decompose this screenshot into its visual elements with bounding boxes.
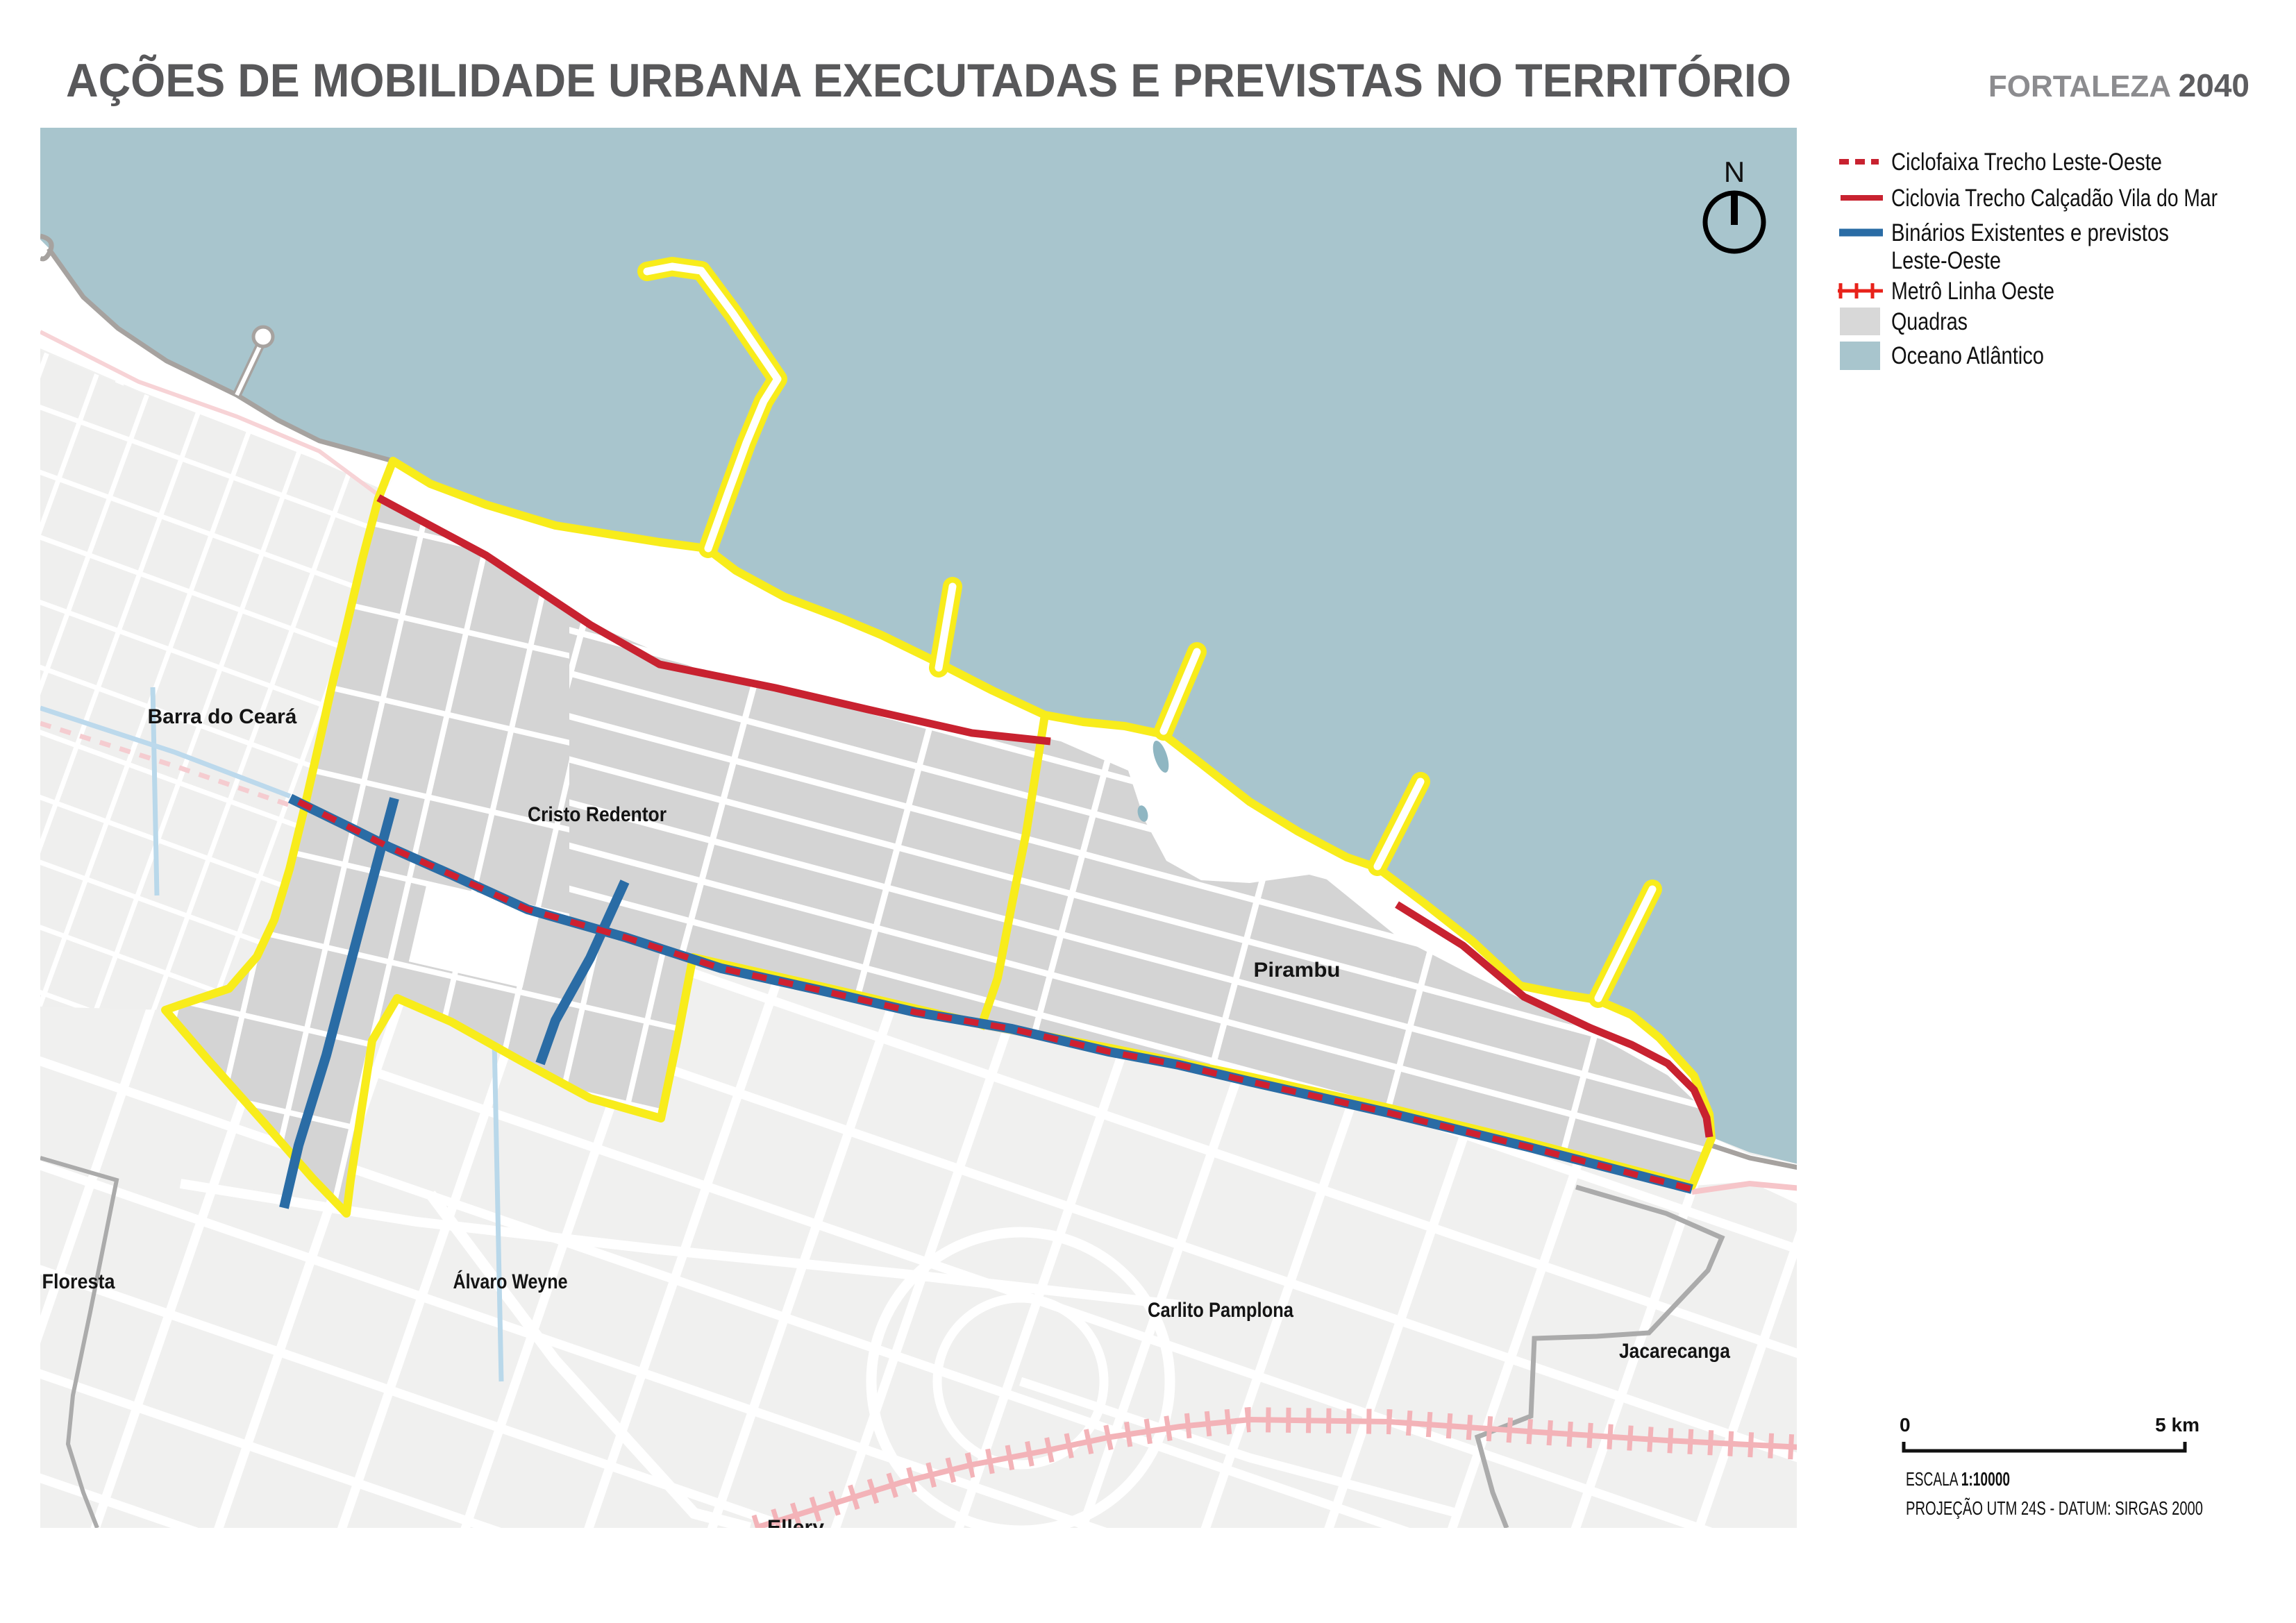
svg-text:0: 0	[1900, 1414, 1911, 1436]
svg-text:Leste-Oeste: Leste-Oeste	[1891, 247, 2001, 274]
svg-text:Carlito Pamplona: Carlito Pamplona	[1148, 1299, 1293, 1322]
svg-text:Ciclovia Trecho Calçadão Vila: Ciclovia Trecho Calçadão Vila do Mar	[1891, 185, 2218, 212]
svg-text:Cristo Redentor: Cristo Redentor	[528, 803, 667, 826]
svg-text:Oceano Atlântico: Oceano Atlântico	[1891, 342, 2044, 369]
svg-text:Barra do Ceará: Barra do Ceará	[148, 705, 297, 728]
svg-text:PROJEÇÃO UTM 24S - DATUM: SIRG: PROJEÇÃO UTM 24S - DATUM: SIRGAS 2000	[1906, 1497, 2203, 1519]
svg-text:5 km: 5 km	[2155, 1414, 2199, 1436]
svg-text:Quadras: Quadras	[1891, 308, 1968, 335]
svg-text:ESCALA 1:10000: ESCALA 1:10000	[1906, 1468, 2010, 1490]
svg-text:Jacarecanga: Jacarecanga	[1619, 1340, 1730, 1363]
svg-text:Pirambu: Pirambu	[1254, 959, 1341, 982]
svg-text:Metrô Linha Oeste: Metrô Linha Oeste	[1891, 278, 2054, 305]
svg-text:Floresta: Floresta	[42, 1270, 115, 1293]
svg-text:Ciclofaixa Trecho Leste-Oeste: Ciclofaixa Trecho Leste-Oeste	[1891, 149, 2162, 176]
svg-text:FORTALEZA 2040: FORTALEZA 2040	[1988, 67, 2249, 103]
svg-text:N: N	[1724, 155, 1745, 188]
svg-text:Álvaro Weyne: Álvaro Weyne	[453, 1270, 568, 1293]
svg-text:AÇÕES DE MOBILIDADE URBANA EXE: AÇÕES DE MOBILIDADE URBANA EXECUTADAS E …	[66, 53, 1791, 107]
svg-text:Binários Existentes e previsto: Binários Existentes e previstos	[1891, 219, 2169, 246]
